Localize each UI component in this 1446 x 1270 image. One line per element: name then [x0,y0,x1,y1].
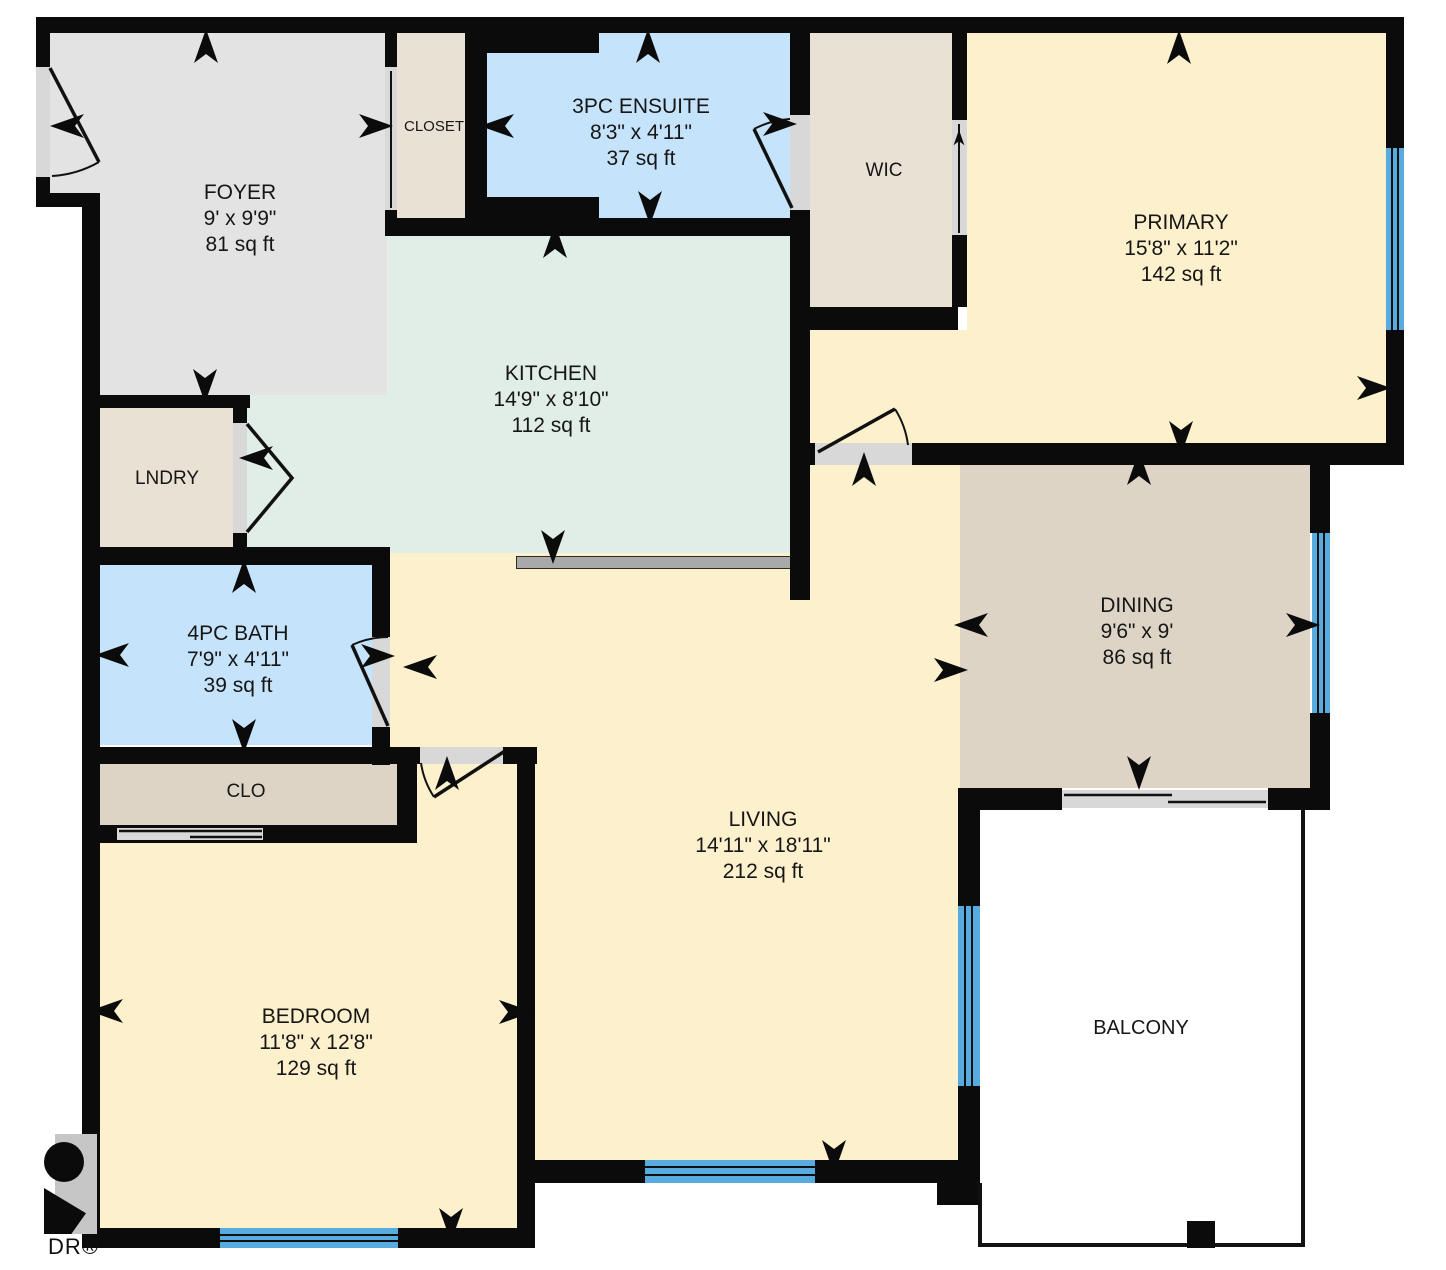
bath-door-opening [372,637,390,727]
balcony-slider [1062,790,1268,808]
room-label-living: LIVING 14'11" x 18'11" 212 sq ft [695,807,830,885]
window-bedroom [220,1228,398,1248]
room-area: 142 sq ft [1124,262,1238,288]
room-name: DINING [1100,593,1174,619]
room-name: LNDRY [135,468,199,490]
wall [465,33,487,236]
bedroom-door-opening [420,747,503,764]
wall [372,547,390,637]
room-dims: 14'9" x 8'10" [493,387,608,413]
wall [958,810,980,906]
floor-plan: FOYER 9' x 9'9" 81 sq ft CLOSET 3PC ENSU… [0,0,1446,1270]
room-dims: 14'11" x 18'11" [695,833,830,859]
wall [82,395,250,408]
wall [958,1086,980,1183]
room-bedroom-annex [417,763,517,848]
room-name: BEDROOM [259,1004,373,1030]
wall [82,193,100,1248]
room-name: FOYER [204,180,277,206]
wall [790,33,810,115]
room-dims: 7'9" x 4'11" [187,647,289,673]
room-living-annex [810,465,960,565]
wall [385,33,397,67]
clo-slider [117,828,263,840]
room-label-dining: DINING 9'6" x 9' 86 sq ft [1100,593,1174,671]
wall [597,218,810,236]
room-name: CLOSET [404,118,464,136]
watermark-logo: DR® [36,1128,126,1268]
balcony-outline [1301,810,1305,1247]
wall [517,1160,645,1183]
entry-door-opening [36,67,50,177]
room-dims: 8'3" x 4'11" [572,120,710,146]
room-label-wic: WIC [866,160,903,182]
watermark-logo-circle [44,1142,84,1182]
wall [958,788,1062,810]
room-area: 129 sq ft [259,1056,373,1082]
window-primary [1386,148,1404,330]
balcony-outline [978,1243,1305,1247]
wall [1310,713,1330,800]
window-dining [1312,533,1330,713]
room-name: KITCHEN [493,361,608,387]
wall [790,210,810,236]
wall [36,17,50,67]
room-name: LIVING [695,807,830,833]
room-area: 39 sq ft [187,673,289,699]
room-label-bedroom: BEDROOM 11'8" x 12'8" 129 sq ft [259,1004,373,1082]
room-dims: 9'6" x 9' [1100,619,1174,645]
wall [790,236,810,600]
room-area: 81 sq ft [204,232,277,258]
room-area: 86 sq ft [1100,645,1174,671]
room-label-ensuite: 3PC ENSUITE 8'3" x 4'11" 37 sq ft [572,94,710,172]
wall [952,235,967,307]
room-area: 212 sq ft [695,859,830,885]
balcony-outline [978,1183,982,1247]
wall [952,33,967,120]
room-label-primary: PRIMARY 15'8" x 11'2" 142 sq ft [1124,210,1238,288]
wic-slider [952,120,967,235]
room-dims: 11'8" x 12'8" [259,1030,373,1056]
wall [82,547,390,565]
wall [36,17,1404,33]
room-label-laundry: LNDRY [135,468,199,490]
room-label-kitchen: KITCHEN 14'9" x 8'10" 112 sq ft [493,361,608,439]
window-living [645,1160,815,1183]
wall [517,747,535,1228]
room-name: 4PC BATH [187,621,289,647]
wall [233,533,247,547]
room-name: WIC [866,160,903,182]
wall [398,1228,535,1248]
wall [82,747,397,764]
wall [487,197,599,236]
room-primary-annex [810,330,967,443]
room-name: PRIMARY [1124,210,1238,236]
wall [397,747,420,764]
wall [1310,458,1330,533]
ensuite-door-opening [790,115,810,210]
watermark-text: DR® [48,1234,99,1260]
primary-door-opening [815,443,912,465]
wall [1386,330,1404,448]
wall [397,763,417,843]
wall [810,307,958,330]
laundry-door-opening [233,423,247,533]
foyer-closet-slider [385,67,397,210]
room-area: 37 sq ft [572,146,710,172]
room-label-bath: 4PC BATH 7'9" x 4'11" 39 sq ft [187,621,289,699]
room-area: 112 sq ft [493,413,608,439]
room-dims: 15'8" x 11'2" [1124,236,1238,262]
room-label-balcony: BALCONY [1093,1016,1189,1040]
room-label-clo: CLO [226,781,265,803]
room-name: 3PC ENSUITE [572,94,710,120]
wall [1386,33,1404,148]
window-living-balcony [958,906,980,1086]
room-kitchen-annex [247,395,387,553]
wall [233,408,247,423]
room-label-foyer: FOYER 9' x 9'9" 81 sq ft [204,180,277,258]
room-name: CLO [226,781,265,803]
room-name: BALCONY [1093,1016,1189,1040]
wall [503,747,537,764]
room-dims: 9' x 9'9" [204,206,277,232]
room-label-closet: CLOSET [404,118,464,136]
kitchen-counter [516,556,792,569]
wall [1268,788,1330,810]
balcony-post [1187,1221,1215,1248]
wall [372,727,390,765]
wall [487,33,599,53]
